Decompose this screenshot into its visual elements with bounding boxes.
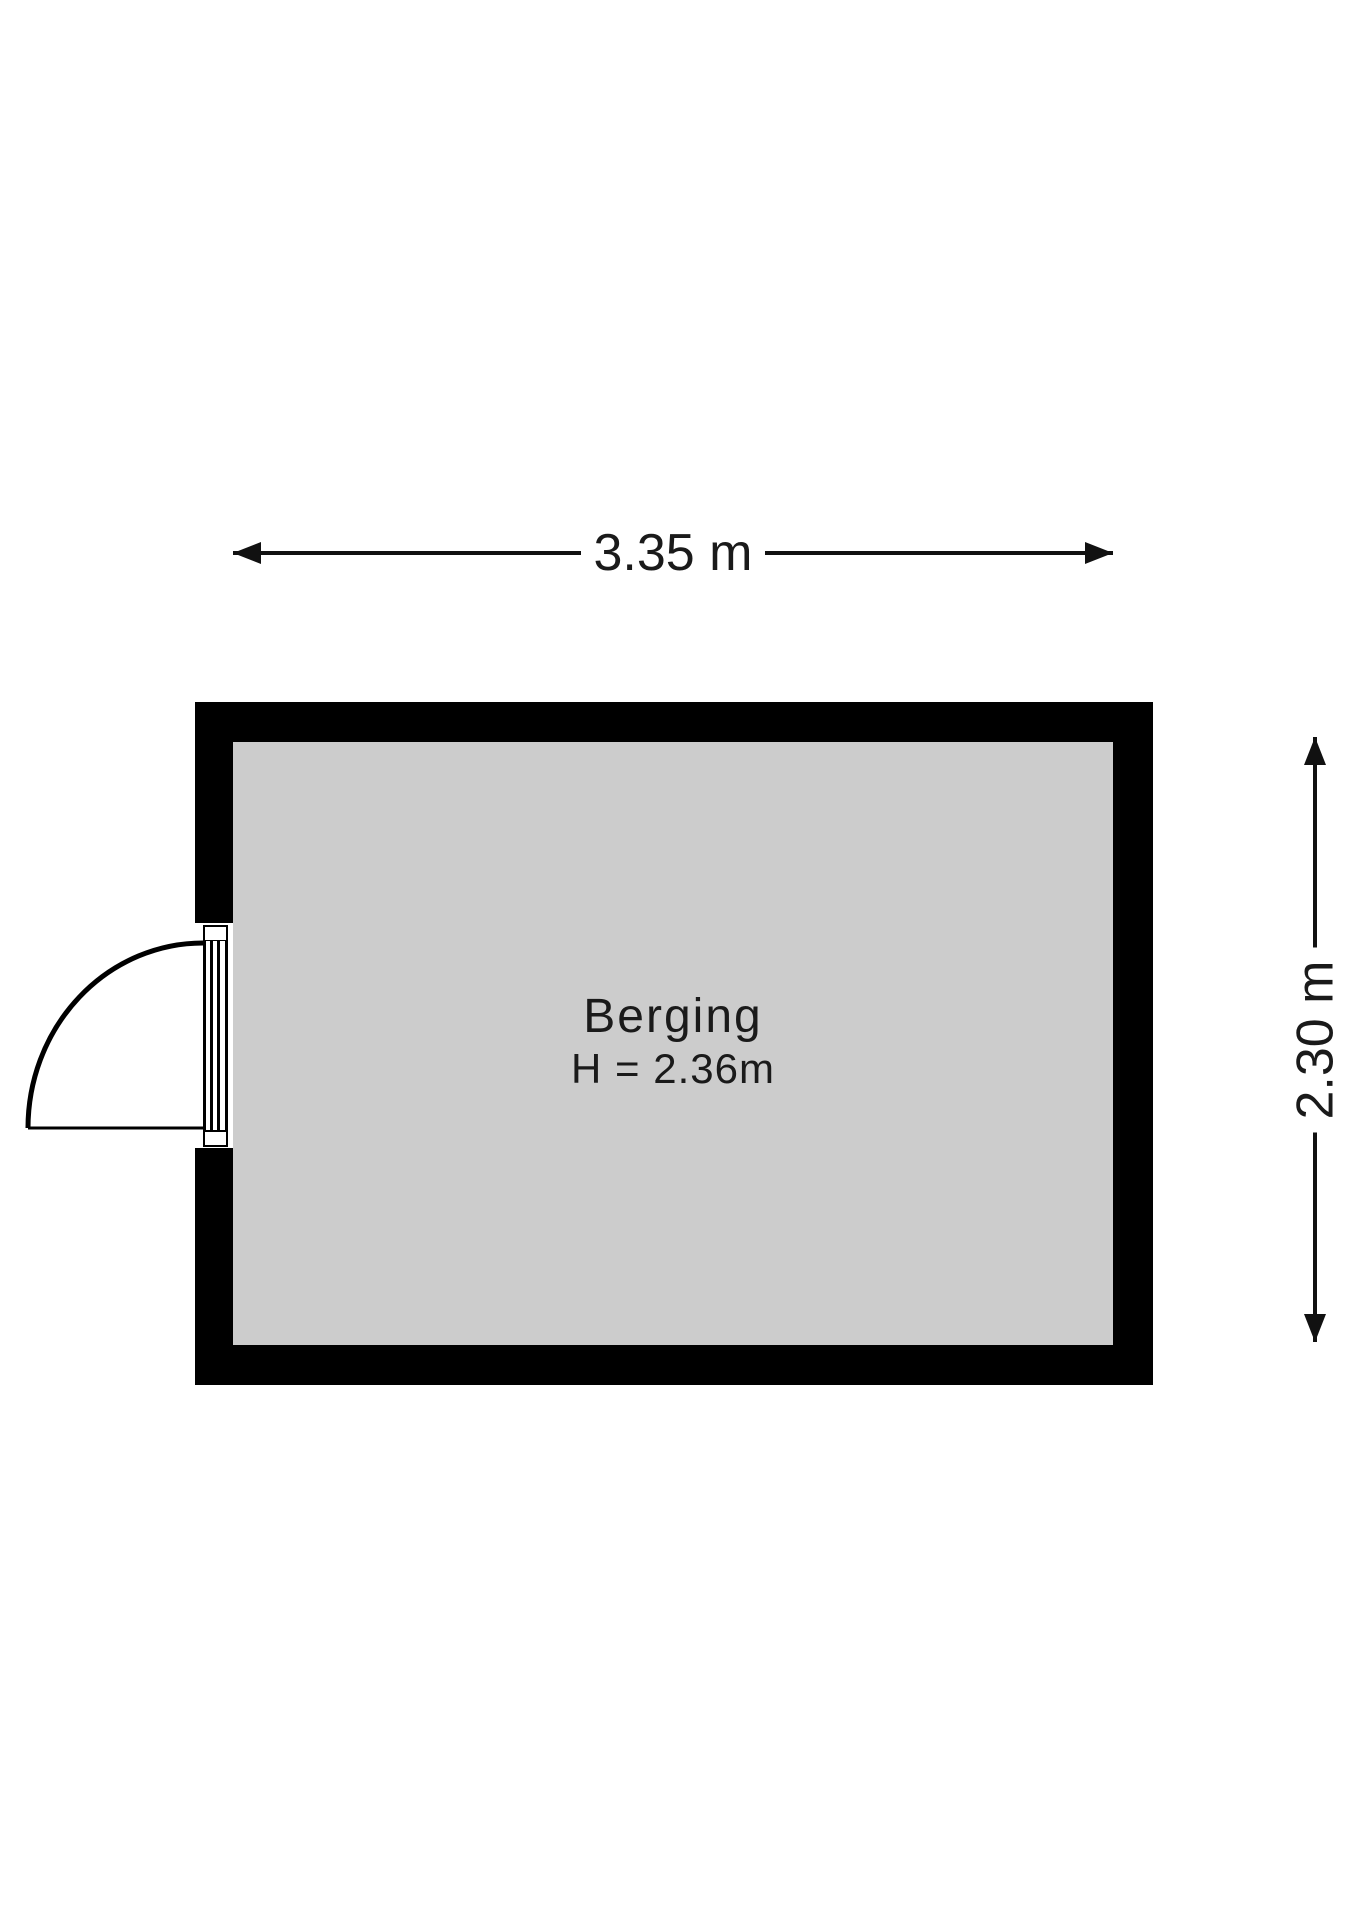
door-swing-arc [0, 900, 260, 1160]
width-dimension-arrow-right-icon [1085, 542, 1113, 564]
height-dimension-arrow-down-icon [1304, 1314, 1326, 1342]
height-dimension-arrow-up-icon [1304, 737, 1326, 765]
height-dimension-label: 2.30 m [1286, 948, 1344, 1133]
width-dimension-label: 3.35 m [581, 524, 766, 582]
width-dimension-arrow-left-icon [233, 542, 261, 564]
room-floor [233, 742, 1113, 1345]
floorplan-canvas: 3.35 m Berging H = 2.36m 2.30 m [0, 0, 1358, 1920]
